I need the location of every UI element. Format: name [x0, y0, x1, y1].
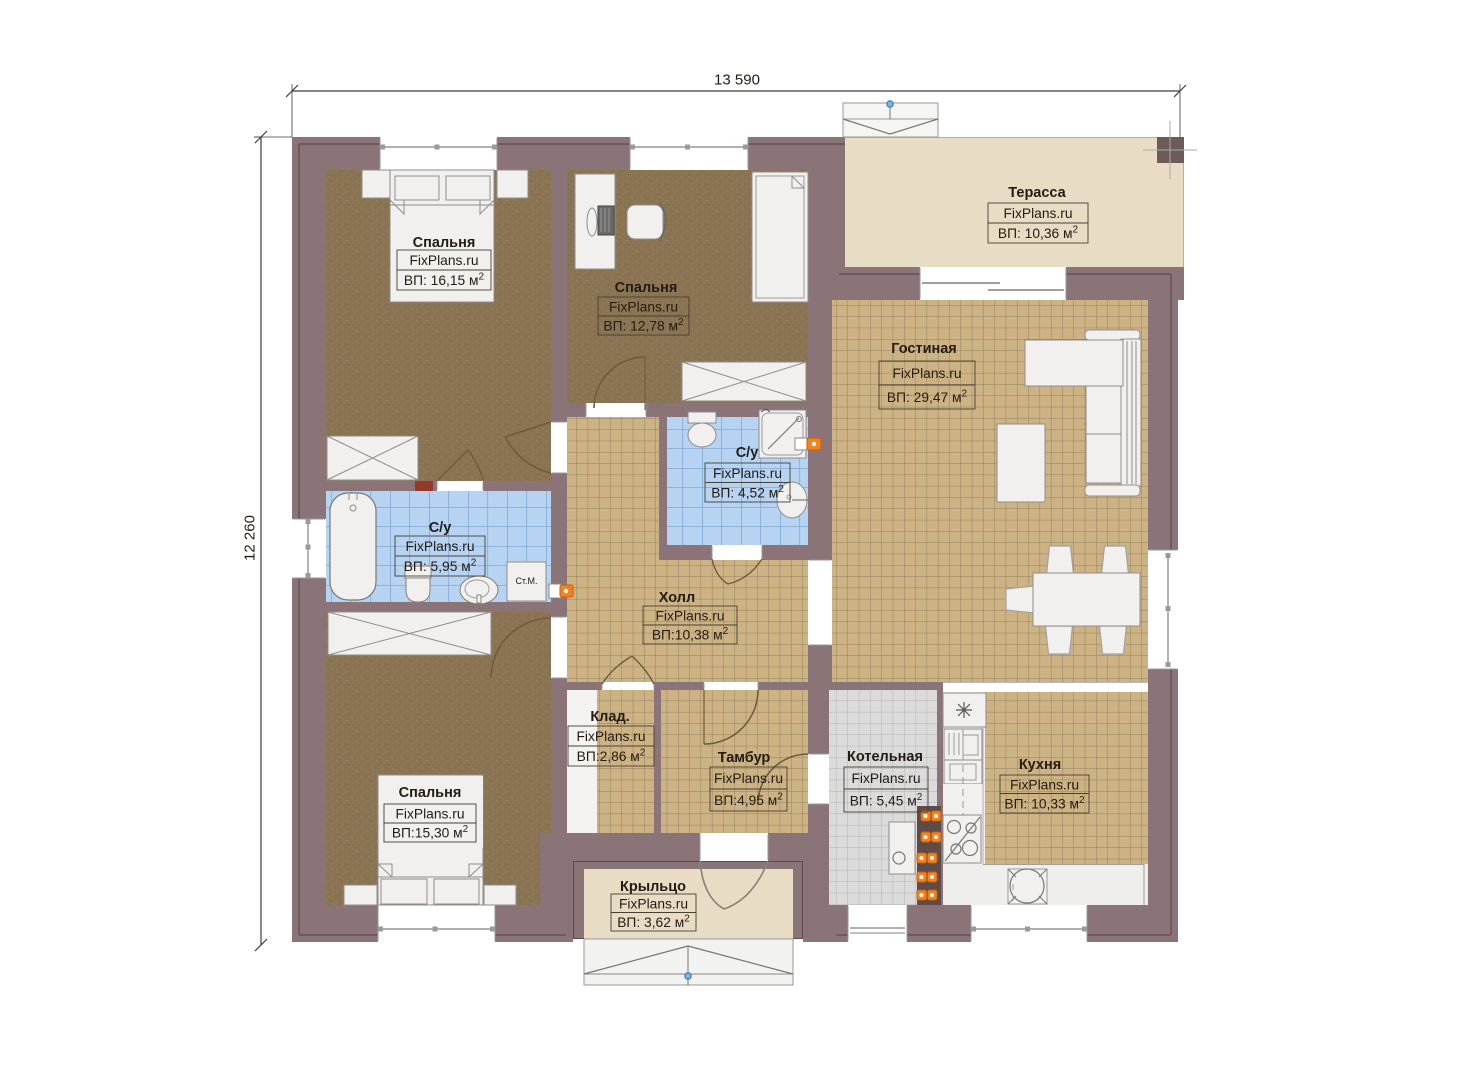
- svg-text:FixPlans.ru: FixPlans.ru: [1010, 777, 1079, 792]
- svg-text:Тамбур: Тамбур: [718, 750, 771, 766]
- svg-text:FixPlans.ru: FixPlans.ru: [851, 771, 920, 786]
- svg-text:ВП: 12,78 м2: ВП: 12,78 м2: [603, 317, 684, 334]
- svg-text:FixPlans.ru: FixPlans.ru: [655, 609, 724, 624]
- svg-text:FixPlans.ru: FixPlans.ru: [714, 771, 783, 786]
- svg-text:Кухня: Кухня: [1019, 757, 1061, 773]
- svg-text:ВП: 29,47 м2: ВП: 29,47 м2: [887, 388, 968, 405]
- svg-text:Спальня: Спальня: [615, 280, 678, 296]
- svg-text:ВП:15,30 м2: ВП:15,30 м2: [392, 824, 469, 841]
- svg-text:Спальня: Спальня: [413, 235, 476, 251]
- svg-text:С/у: С/у: [429, 520, 452, 536]
- svg-text:Спальня: Спальня: [399, 785, 462, 801]
- svg-text:FixPlans.ru: FixPlans.ru: [395, 807, 464, 822]
- svg-text:Холл: Холл: [659, 590, 695, 606]
- svg-text:FixPlans.ru: FixPlans.ru: [609, 300, 678, 315]
- svg-text:ВП: 3,62 м2: ВП: 3,62 м2: [617, 913, 690, 930]
- svg-text:FixPlans.ru: FixPlans.ru: [713, 466, 782, 481]
- svg-text:FixPlans.ru: FixPlans.ru: [405, 539, 474, 554]
- svg-text:FixPlans.ru: FixPlans.ru: [619, 896, 688, 911]
- svg-text:12 260: 12 260: [242, 515, 259, 561]
- svg-text:ВП:2,86 м2: ВП:2,86 м2: [577, 747, 646, 764]
- svg-text:13 590: 13 590: [714, 72, 760, 89]
- svg-text:ВП: 5,45 м2: ВП: 5,45 м2: [850, 792, 923, 809]
- svg-text:Гостиная: Гостиная: [891, 341, 957, 357]
- svg-text:ВП: 5,95 м2: ВП: 5,95 м2: [404, 557, 477, 574]
- svg-text:ВП: 4,52 м2: ВП: 4,52 м2: [711, 483, 784, 500]
- svg-text:ВП:10,38 м2: ВП:10,38 м2: [652, 626, 729, 643]
- svg-text:FixPlans.ru: FixPlans.ru: [892, 366, 961, 381]
- svg-text:Котельная: Котельная: [847, 749, 923, 765]
- svg-text:С/у: С/у: [736, 445, 759, 461]
- svg-text:ВП: 10,36 м2: ВП: 10,36 м2: [998, 224, 1079, 241]
- svg-text:ВП: 16,15 м2: ВП: 16,15 м2: [404, 271, 485, 288]
- svg-text:ВП:4,95 м2: ВП:4,95 м2: [714, 791, 783, 808]
- svg-text:Крыльцо: Крыльцо: [620, 879, 686, 895]
- svg-text:Ст.М.: Ст.М.: [515, 576, 537, 586]
- svg-text:FixPlans.ru: FixPlans.ru: [1003, 206, 1072, 221]
- svg-text:Клад.: Клад.: [590, 709, 629, 725]
- svg-text:Терасса: Терасса: [1008, 185, 1066, 201]
- svg-text:FixPlans.ru: FixPlans.ru: [409, 253, 478, 268]
- svg-text:ВП: 10,33 м2: ВП: 10,33 м2: [1004, 794, 1085, 811]
- svg-text:FixPlans.ru: FixPlans.ru: [576, 729, 645, 744]
